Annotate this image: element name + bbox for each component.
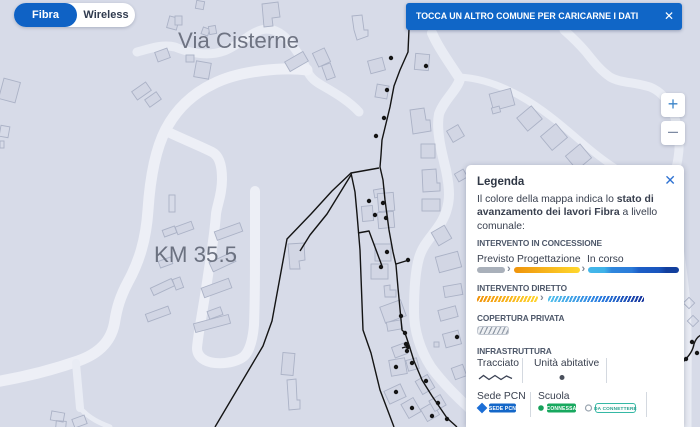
svg-text:SEDE PCN: SEDE PCN (489, 406, 516, 412)
svg-text:KM 35.5: KM 35.5 (154, 242, 237, 267)
svg-text:CONNESSA: CONNESSA (547, 406, 577, 412)
svg-text:DA CONNETTERE: DA CONNETTERE (594, 406, 637, 411)
svg-text:Via Cisterne: Via Cisterne (178, 28, 299, 53)
